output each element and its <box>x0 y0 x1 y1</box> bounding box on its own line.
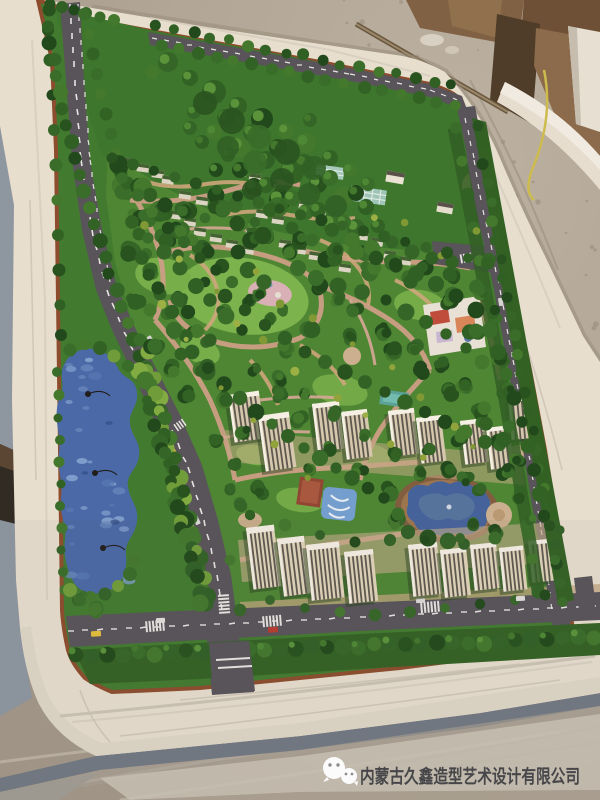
svg-text:内蒙古久鑫造型艺术设计有限公司: 内蒙古久鑫造型艺术设计有限公司 <box>360 766 580 787</box>
